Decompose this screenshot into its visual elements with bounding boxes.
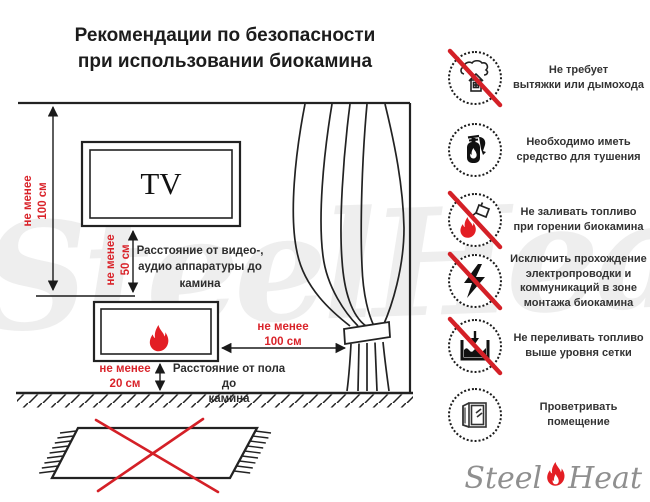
dim-floor-label: не менее 20 см [93,362,157,392]
rug [39,419,271,492]
dim-tv-caption: Расстояние от видео-, аудио аппаратуры д… [135,243,265,292]
rule-text: Исключить прохождение электропроводки и … [510,252,647,310]
rule-text: Необходимо иметь средство для тушения [510,135,647,164]
curtain-tie [344,322,390,344]
logo-text-steel: Steel [464,461,542,496]
dim-tv-label: не менее 50 см [104,225,134,295]
rule-item-no-refuel: Не заливать топливо при горении биокамин… [447,192,647,248]
no-wiring-icon [447,253,503,309]
dim-curtain-label: не менее 100 см [233,320,333,350]
dim-ceiling-label: не менее 100 см [21,161,51,241]
no-overfill-icon [447,318,503,374]
prohibited-slash-icon [444,47,506,109]
page-title: Рекомендации по безопасности при использ… [22,23,428,75]
no-refuel-icon [447,192,503,248]
open-window-icon [447,387,503,443]
prohibited-slash-icon [444,315,506,377]
rule-text: Не требует вытяжки или дымохода [510,63,647,92]
rule-item-ventilate: Проветривать помещение [447,387,647,443]
rule-text: Не переливать топливо выше уровня сетки [510,331,647,360]
rule-text: Не заливать топливо при горении биокамин… [510,205,647,234]
prohibited-slash-icon [444,189,506,251]
prohibited-slash-icon [444,250,506,312]
rule-item-no-wiring: Исключить прохождение электропроводки и … [447,252,647,310]
rule-item-extinguisher: Необходимо иметь средство для тушения [447,122,647,178]
no-chimney-icon [447,50,503,106]
logo-text-heat: Heat [568,461,642,496]
rule-item-no-chimney: Не требует вытяжки или дымохода [447,50,647,106]
infographic: SteelHeat Рекомендации по безопасности п… [0,0,650,502]
dim-floor-caption: Расстояние от пола до камина [169,362,289,407]
fire-extinguisher-icon [447,122,503,178]
rule-text: Проветривать помещение [510,400,647,429]
rule-item-no-overfill: Не переливать топливо выше уровня сетки [447,318,647,374]
steelheat-logo: Steel Heat [464,461,642,496]
tv-label: TV [82,166,240,202]
logo-flame-icon [545,462,567,492]
